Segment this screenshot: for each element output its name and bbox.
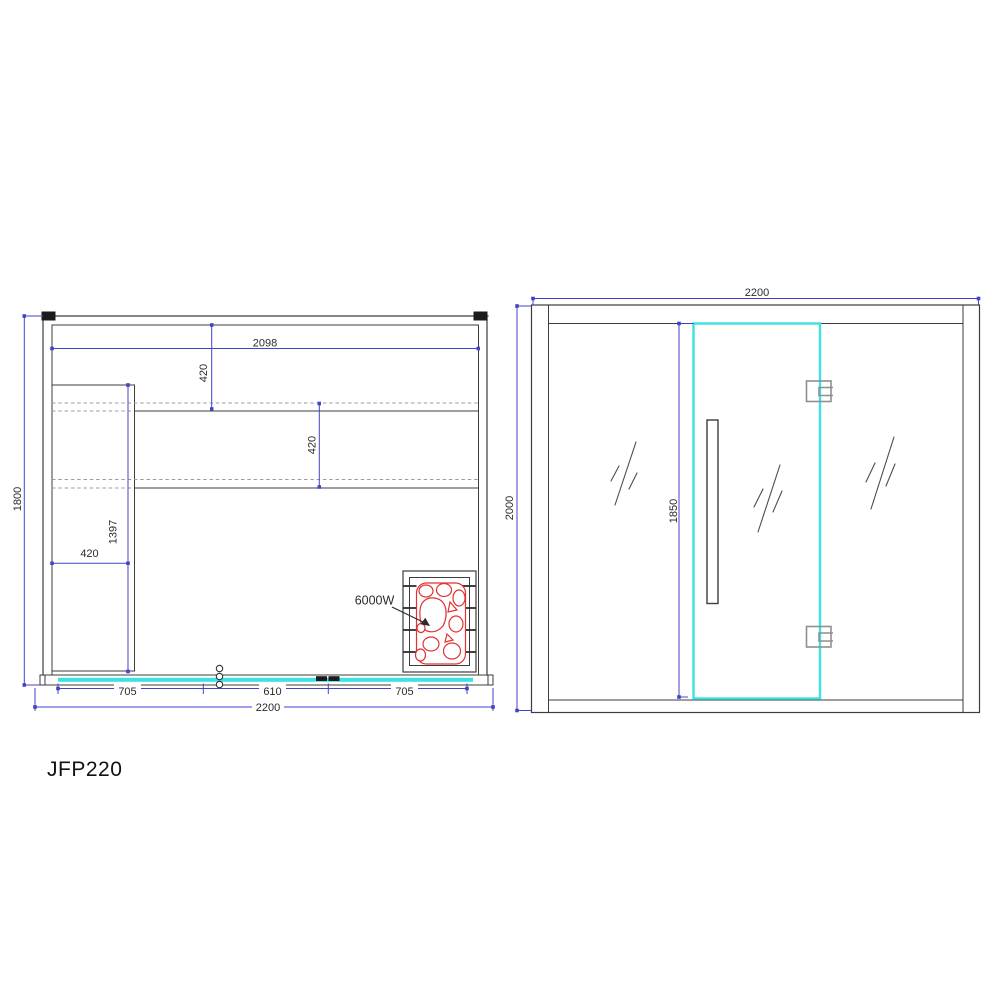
model-label: JFP220: [47, 758, 122, 781]
dim-front-overall-height: 2000: [504, 496, 516, 520]
plan-side-bench: [52, 385, 135, 671]
glass-reflection-left: [611, 442, 637, 505]
dim-back-bench-depth: 420: [198, 364, 210, 382]
heater-power-label: 6000W: [355, 594, 395, 608]
front-view: 2200 2000 1850: [504, 287, 980, 713]
plan-bench-edges: [52, 403, 479, 488]
dim-door-width: 610: [263, 686, 281, 698]
front-frame: [532, 305, 980, 713]
glass-reflection-door: [754, 465, 782, 532]
plan-front-glass: [58, 678, 473, 682]
plan-door-hinge: [216, 665, 222, 687]
dim-side-bench-width: 420: [80, 548, 98, 560]
sauna-technical-drawing: 1800 2098 420 420 1397 420: [0, 0, 1000, 1000]
plan-heater: [403, 571, 476, 672]
door-handle: [707, 420, 718, 604]
dim-front-left-glass: 705: [118, 686, 136, 698]
corner-cap-right: [474, 312, 488, 321]
glass-reflection-right: [866, 437, 895, 509]
plan-front-wall: [40, 675, 493, 685]
dim-plan-overall-width: 2200: [256, 702, 280, 714]
dim-overall-depth: 1800: [12, 487, 24, 511]
dim-door-height: 1850: [668, 499, 680, 523]
dim-front-right-glass: 705: [395, 686, 413, 698]
dim-side-bench-length: 1397: [108, 520, 120, 544]
dim-back-wall-inner: 2098: [253, 338, 277, 350]
plan-view: 1800 2098 420 420 1397 420: [12, 312, 493, 715]
dim-front-overall-width: 2200: [745, 287, 769, 299]
corner-cap-left: [42, 312, 56, 321]
front-dimensions: 2200 2000 1850: [504, 287, 979, 711]
dim-middle-bench-depth: 420: [307, 436, 319, 454]
